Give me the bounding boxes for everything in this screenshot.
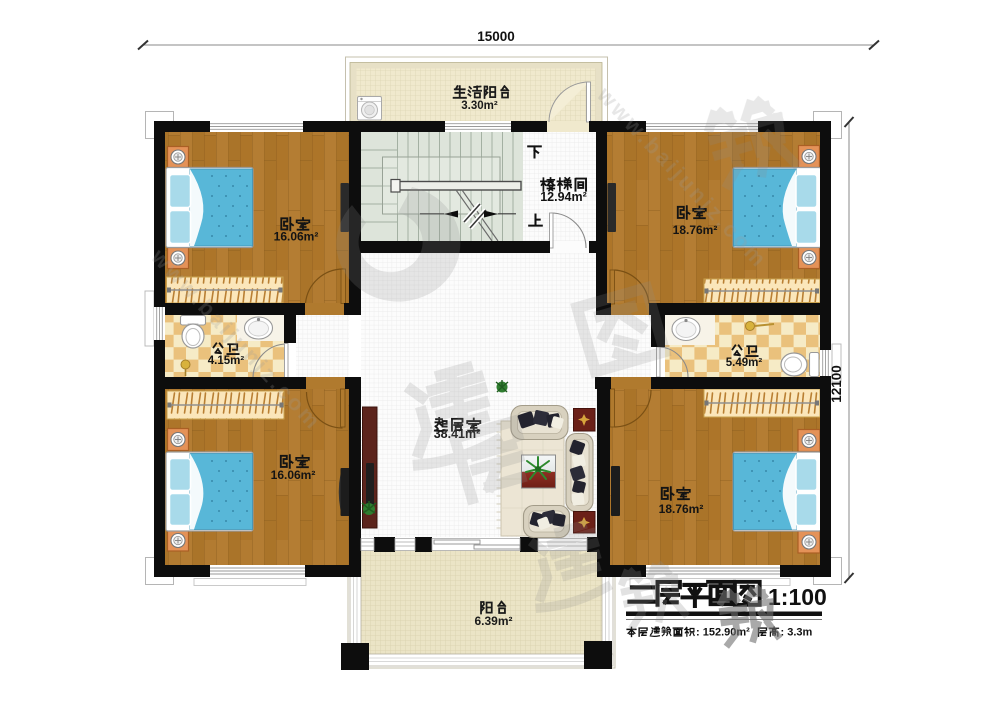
svg-text:16.06m²: 16.06m² xyxy=(271,468,316,482)
svg-text:12.94m²: 12.94m² xyxy=(540,190,587,204)
svg-text:15000: 15000 xyxy=(477,29,515,44)
svg-text:12100: 12100 xyxy=(829,365,844,403)
svg-text:18.76m²: 18.76m² xyxy=(659,502,704,516)
svg-text:5.49m²: 5.49m² xyxy=(726,357,763,369)
svg-text:: 152.90m²: : 152.90m² xyxy=(696,627,750,639)
svg-text:1:100: 1:100 xyxy=(768,584,827,610)
svg-text:6.39m²: 6.39m² xyxy=(474,614,512,628)
svg-text:: 3.3m: : 3.3m xyxy=(781,627,813,639)
svg-text:3.30m²: 3.30m² xyxy=(461,100,498,112)
svg-text:16.06m²: 16.06m² xyxy=(274,230,319,244)
